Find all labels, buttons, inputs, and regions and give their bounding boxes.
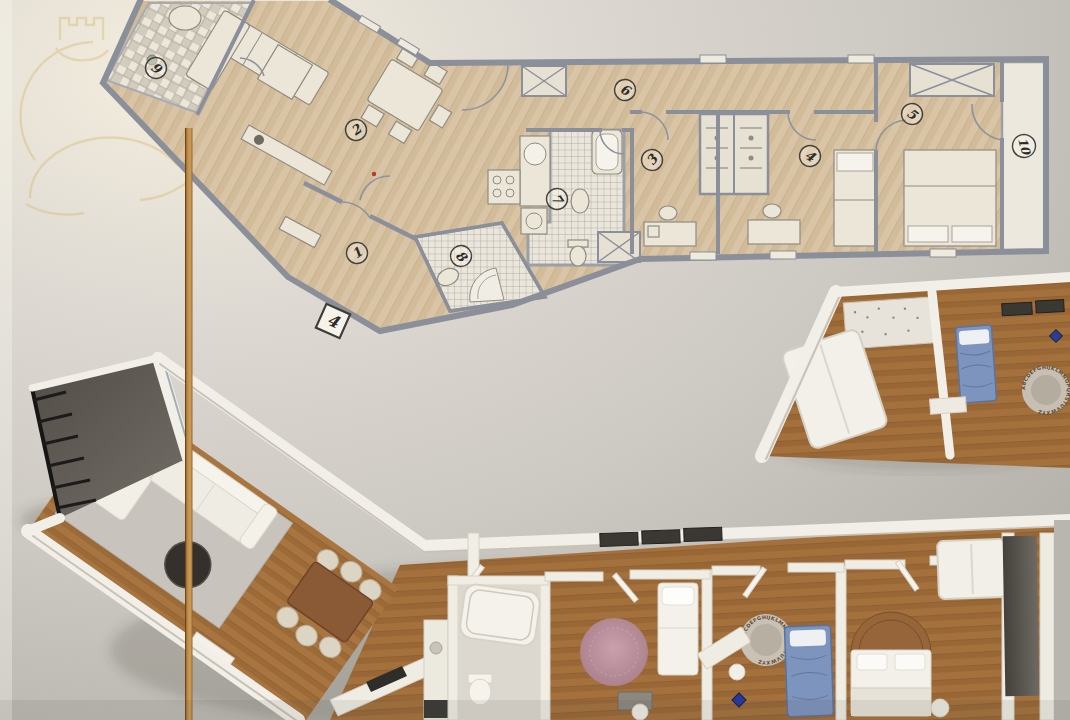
floorplan-svg: ABCDEFGHIJKLMNOPQRSTUVWXYZ: [0, 0, 1070, 720]
floorplan-sheet: ABCDEFGHIJKLMNOPQRSTUVWXYZ: [0, 0, 1070, 720]
bottom-shade: [0, 700, 1070, 720]
